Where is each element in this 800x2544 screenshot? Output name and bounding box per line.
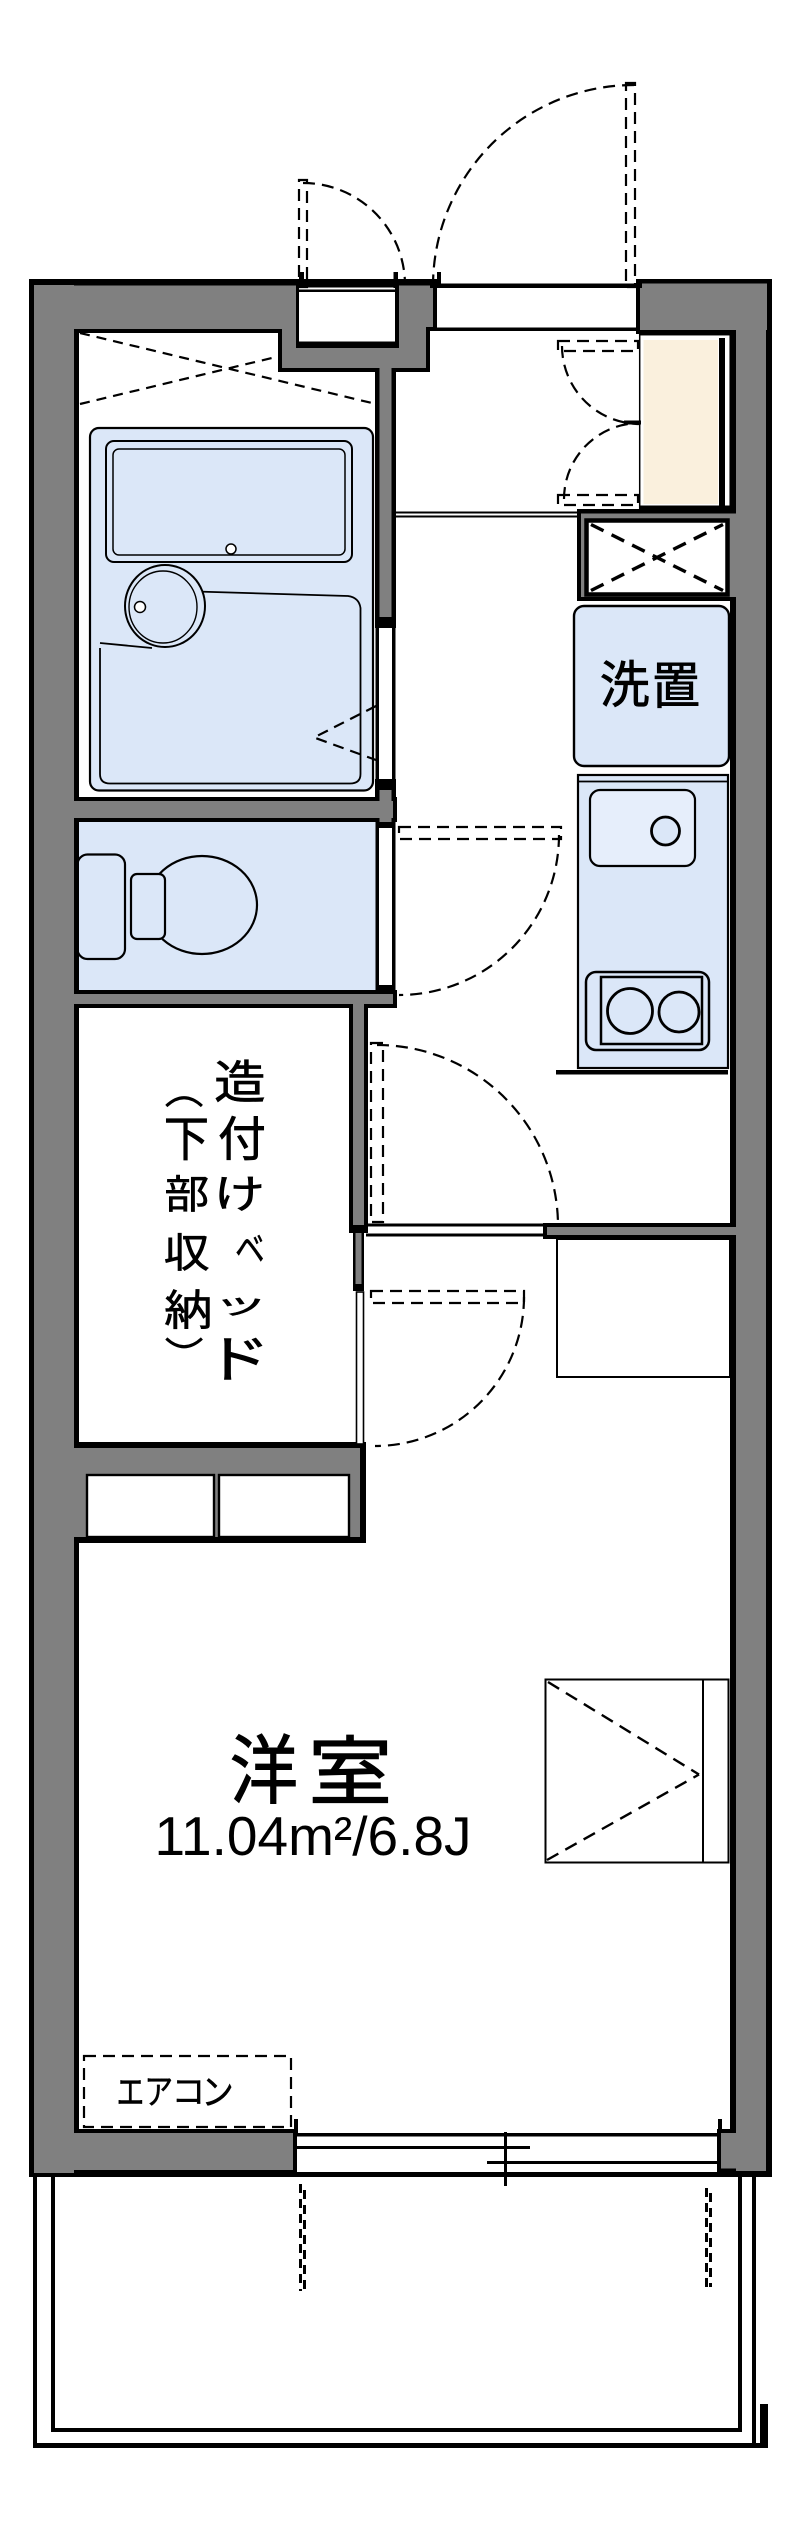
svg-text:11.04m²/6.8J: 11.04m²/6.8J: [155, 1805, 472, 1867]
